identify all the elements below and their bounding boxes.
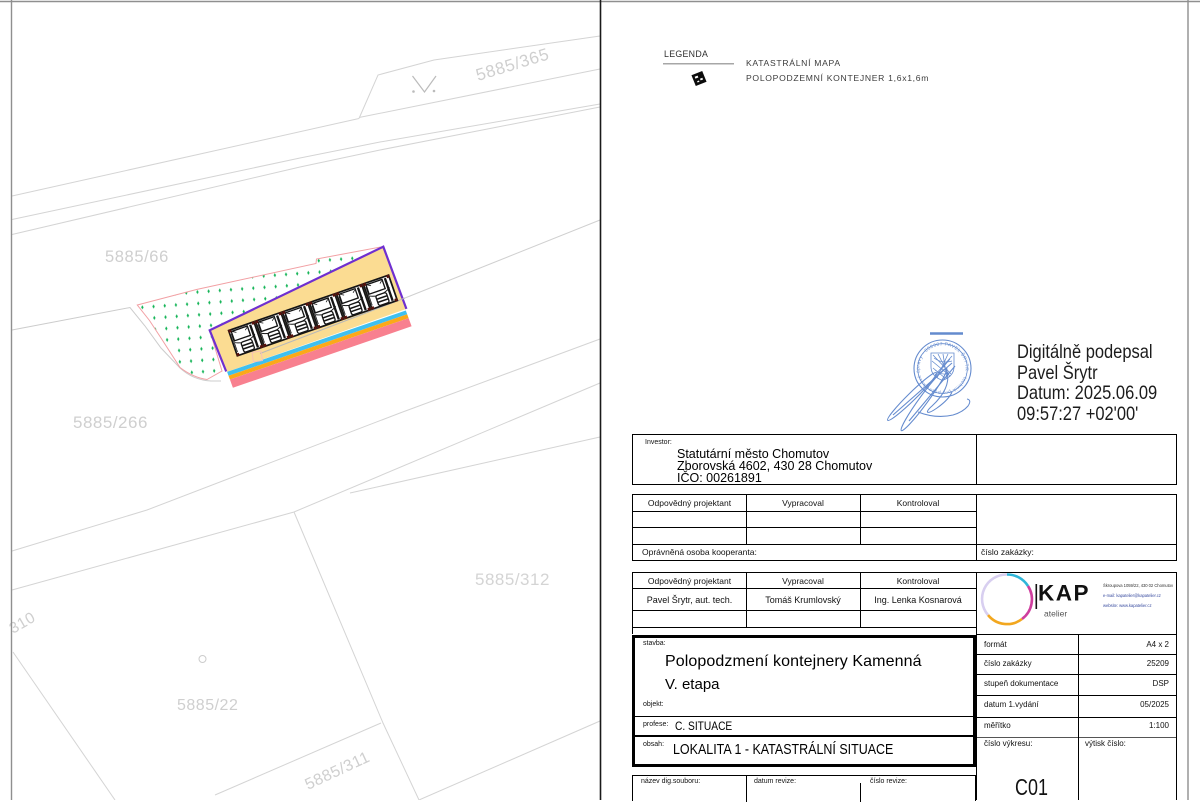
svg-text:5885/266: 5885/266 (73, 413, 148, 432)
svg-text:PAVEL ŠRYTR · technik pro poze: PAVEL ŠRYTR · technik pro pozemkové úpra… (880, 325, 969, 395)
svg-text:5885/365: 5885/365 (474, 45, 552, 85)
svg-text:website: www.kapatelier.cz: website: www.kapatelier.cz (1103, 603, 1152, 608)
svg-text:LEGENDA: LEGENDA (664, 49, 708, 59)
svg-text:5885/66: 5885/66 (105, 248, 169, 266)
svg-text:e-mail: kapatelier@kapatelier.: e-mail: kapatelier@kapatelier.cz (1103, 593, 1161, 598)
svg-text:KATASTRÁLNÍ MAPA: KATASTRÁLNÍ MAPA (746, 58, 841, 68)
svg-text:5885/311: 5885/311 (303, 749, 373, 794)
svg-text:KAP: KAP (1038, 581, 1090, 606)
svg-text:5885/312: 5885/312 (475, 570, 550, 589)
svg-text:5885/22: 5885/22 (177, 697, 238, 714)
svg-text:atelier: atelier (1044, 609, 1067, 619)
svg-text:Škroupova 1059/22, 430 02 Chom: Škroupova 1059/22, 430 02 Chomutov (1103, 583, 1174, 588)
svg-text:POLOPODZEMNÍ KONTEJNER 1,6x1,: POLOPODZEMNÍ KONTEJNER 1,6x1,6m (746, 73, 929, 83)
